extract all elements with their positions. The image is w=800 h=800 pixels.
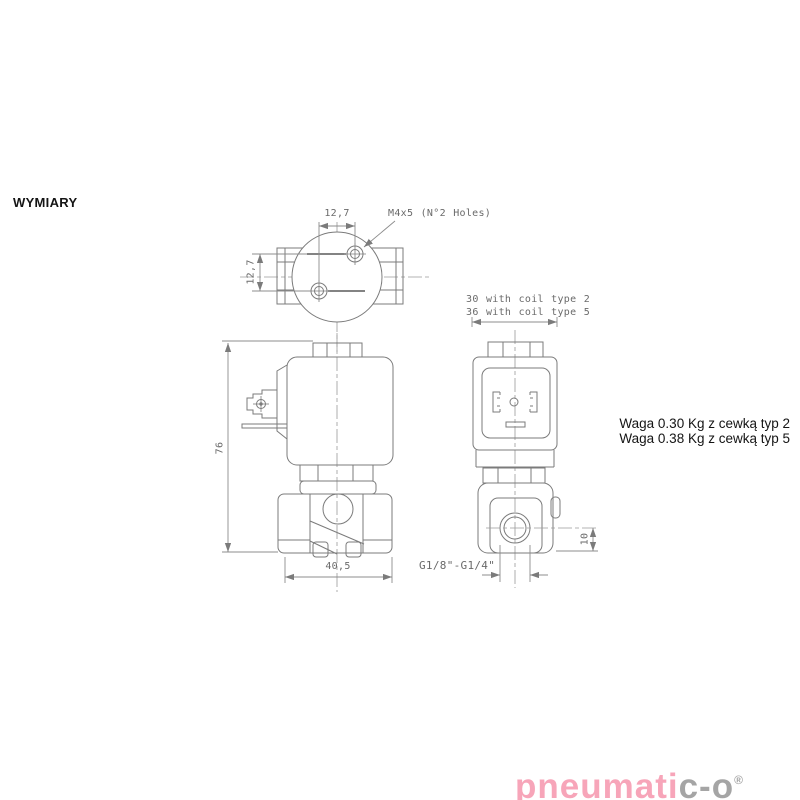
mounting-holes-note: M4x5 (N°2 Holes) bbox=[388, 208, 491, 219]
page-title: WYMIARY bbox=[13, 195, 77, 210]
dim-hole-spacing-vertical: 12,7 bbox=[246, 259, 257, 284]
dim-overall-height: 76 bbox=[215, 442, 226, 455]
top-view-drawing bbox=[240, 222, 430, 352]
depth-note-coil-type-2: 30 with coil type 2 bbox=[466, 294, 590, 305]
weight-note-coil-type-5: Waga 0.38 Kg z cewką typ 5 bbox=[600, 432, 790, 447]
depth-note-coil-type-5: 36 with coil type 5 bbox=[466, 307, 590, 318]
front-view-dimensions bbox=[222, 341, 392, 583]
side-view-drawing bbox=[473, 330, 598, 588]
weight-note-coil-type-2: Waga 0.30 Kg z cewką typ 2 bbox=[600, 417, 790, 432]
registered-trademark-icon: ® bbox=[734, 773, 743, 787]
logo-text-primary: pneumati bbox=[515, 767, 679, 800]
valve-dimension-drawing bbox=[0, 0, 800, 800]
weight-notes: Waga 0.30 Kg z cewką typ 2 Waga 0.38 Kg … bbox=[600, 417, 790, 446]
technical-drawing-page: WYMIARY 12,7 12,7 M4x5 (N°2 Holes) 76 40… bbox=[0, 0, 800, 800]
logo-text-secondary: c-o bbox=[679, 767, 735, 800]
dim-port-offset: 10 bbox=[580, 533, 591, 546]
pneumatico-logo: pneumatic-o® bbox=[515, 761, 743, 800]
front-view-drawing bbox=[242, 333, 393, 592]
thread-size-label: G1/8"-G1/4" bbox=[419, 559, 495, 572]
dim-hole-spacing-horizontal: 12,7 bbox=[324, 208, 349, 219]
dim-body-width: 40,5 bbox=[325, 561, 350, 572]
